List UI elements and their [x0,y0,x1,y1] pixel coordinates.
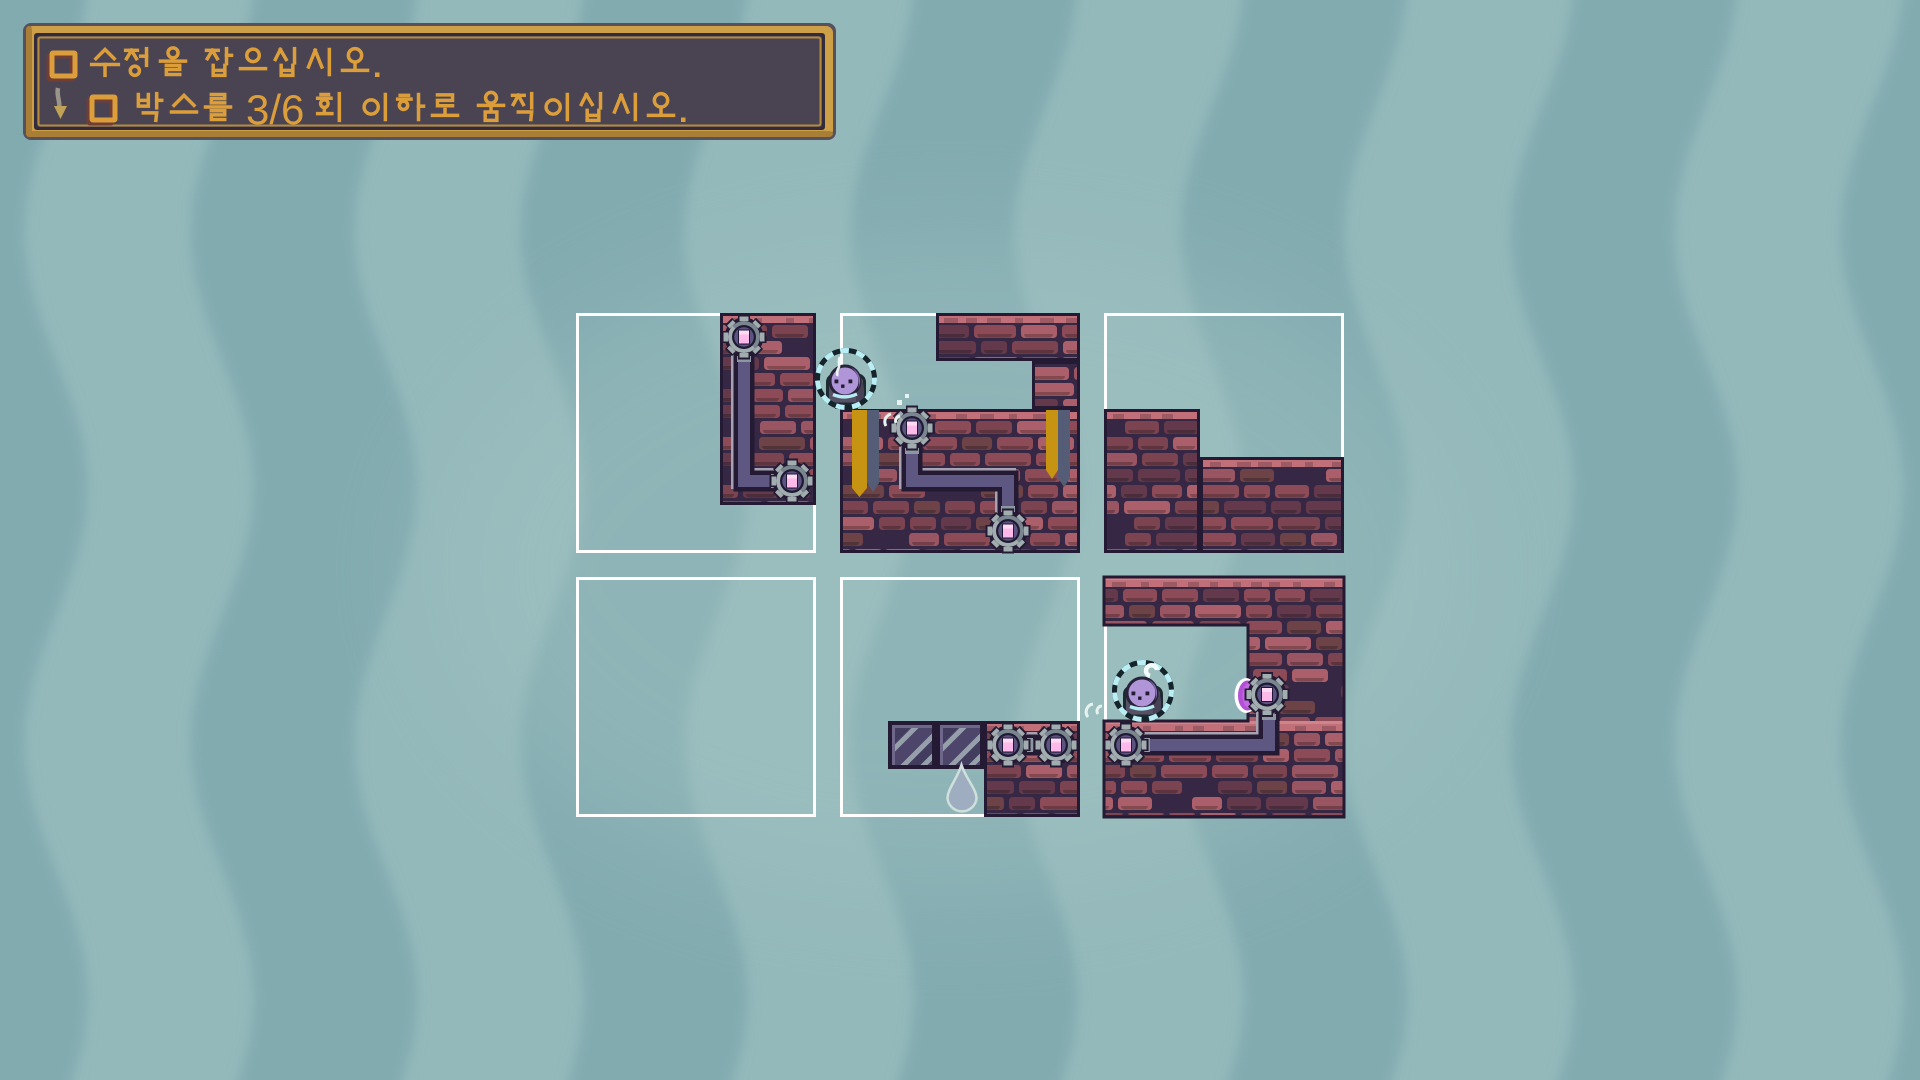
svg-text:3/6: 3/6 [246,86,304,133]
